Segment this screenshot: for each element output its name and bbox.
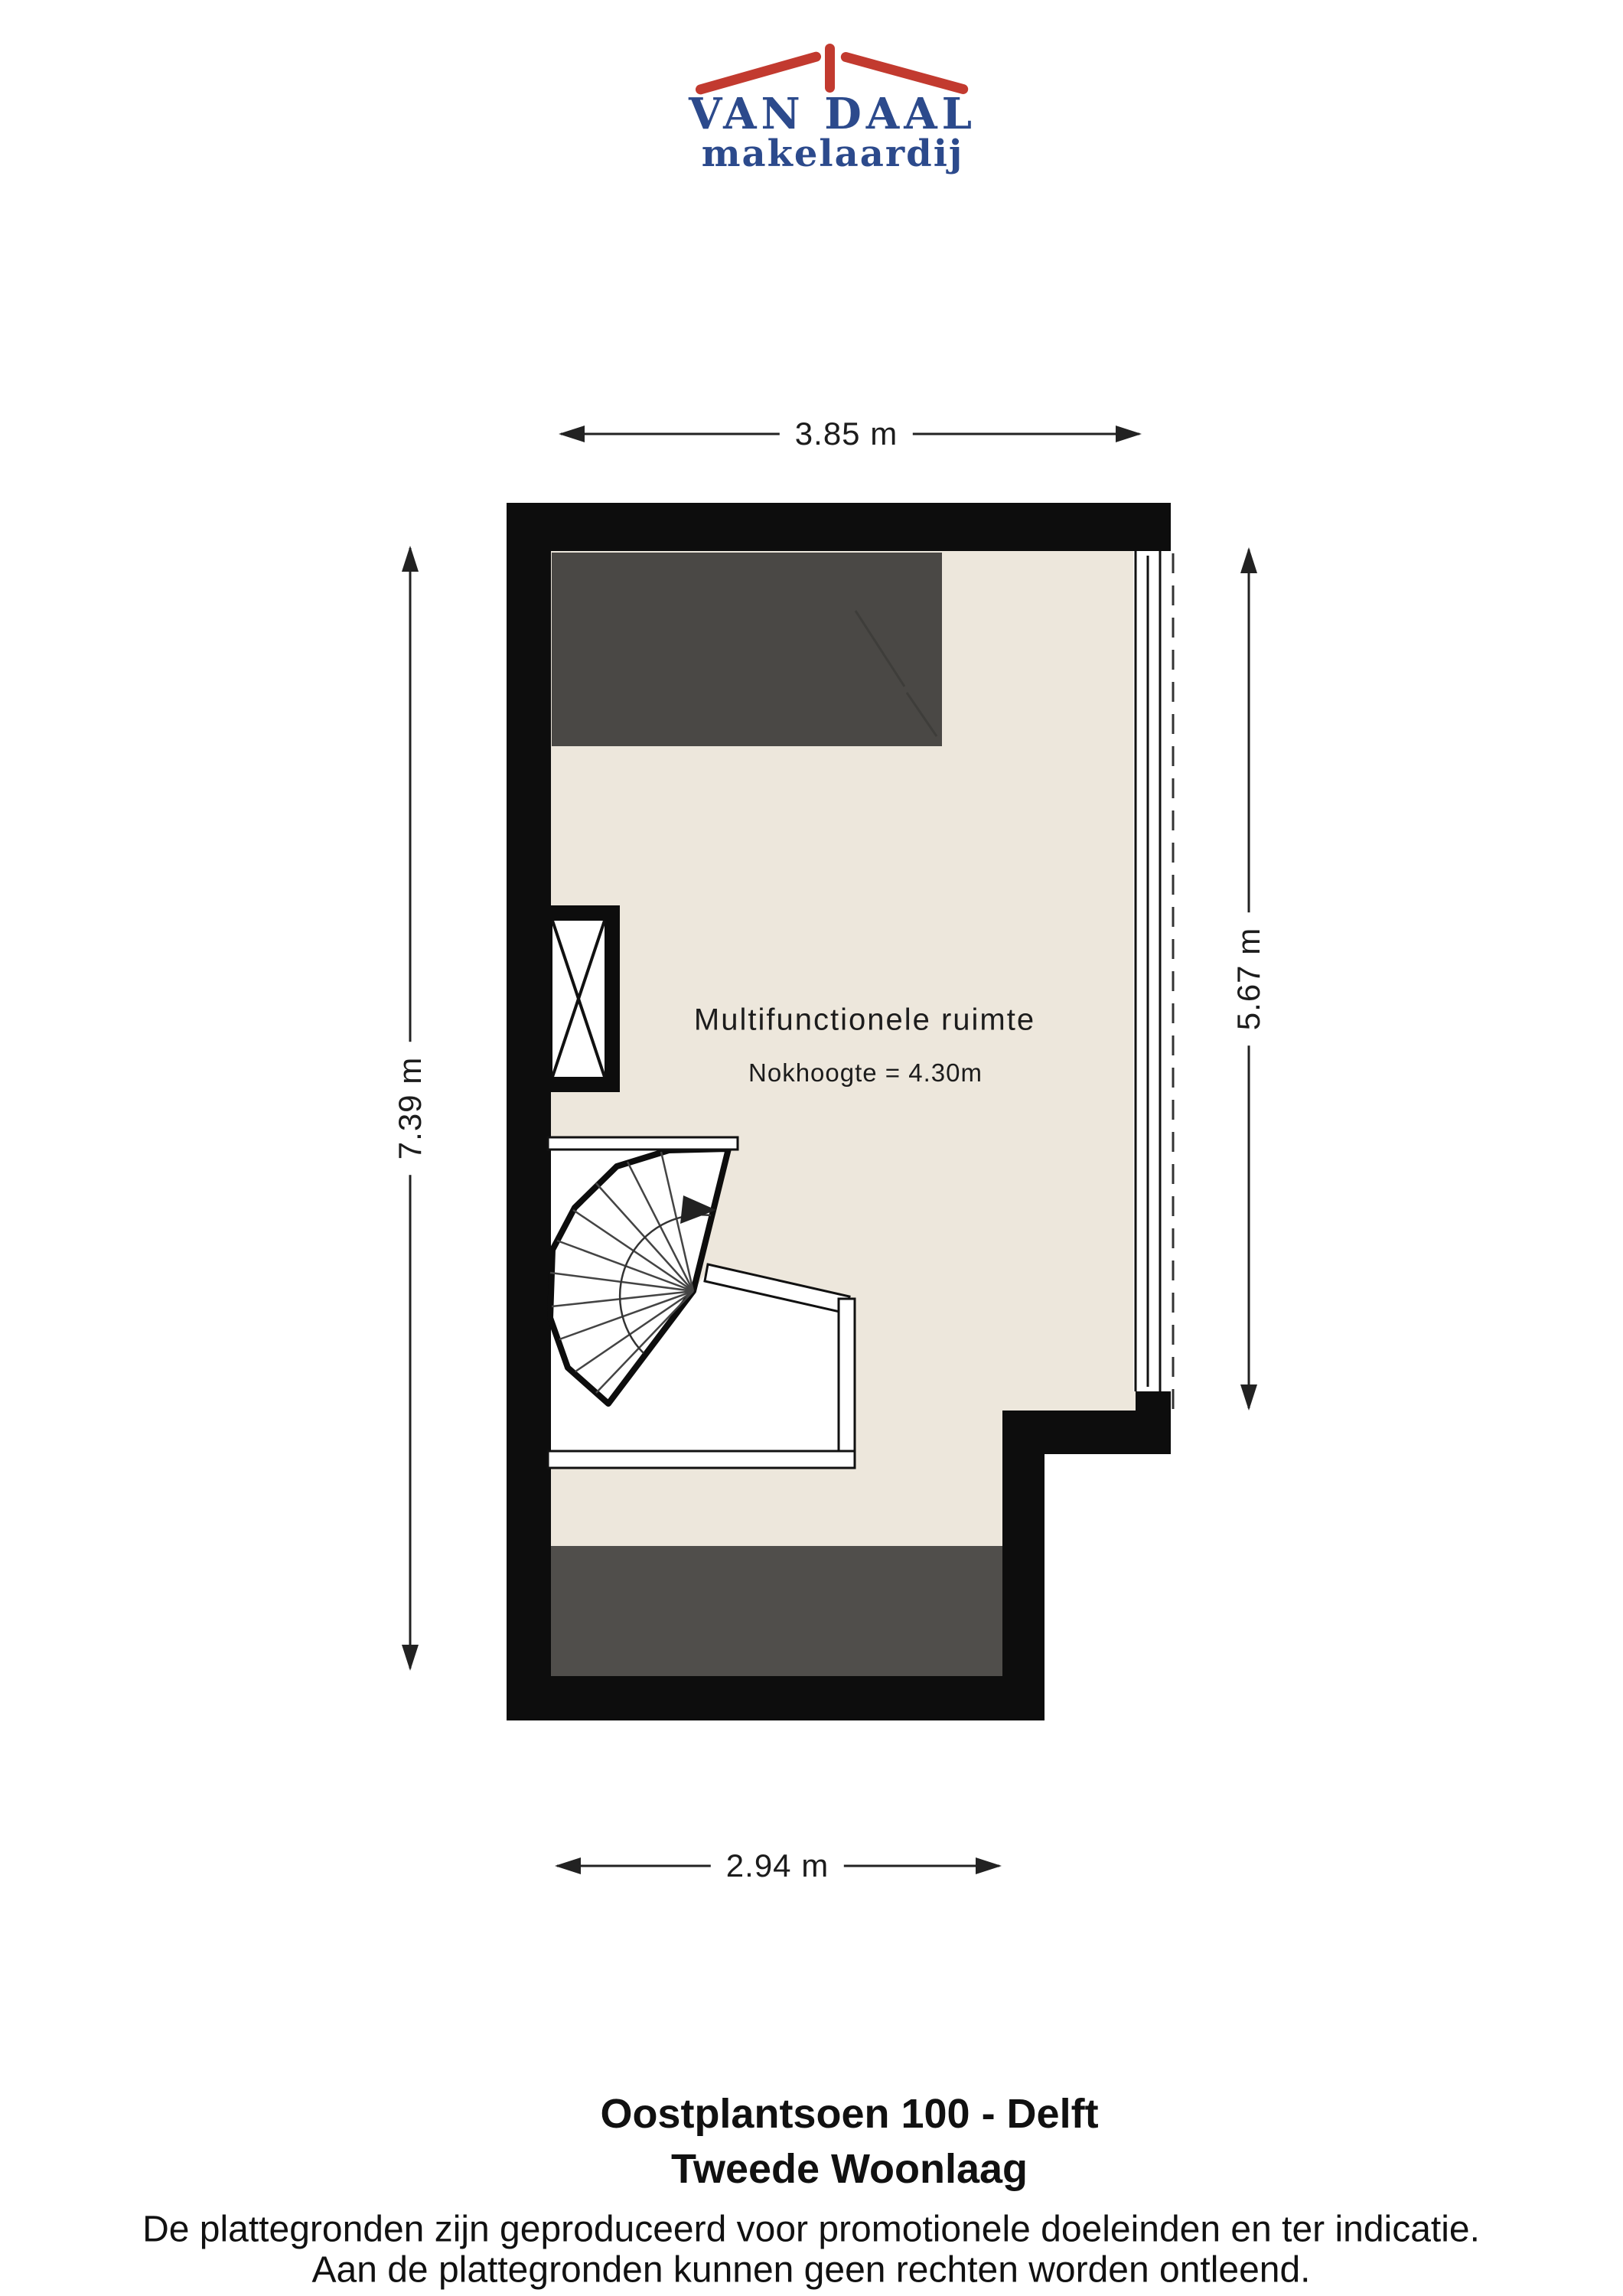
floorplan-page: VAN DAAL makelaardij [0, 0, 1623, 2296]
window [1133, 551, 1162, 1391]
disclaimer-line-2: Aan de plattegronden kunnen geen rechten… [311, 2249, 1310, 2291]
sloped-ceiling-bottom [551, 1546, 1002, 1676]
dimension-top-label: 3.85 m [780, 414, 913, 454]
shaft-icon [549, 905, 620, 1092]
address-title: Oostplantsoen 100 - Delft [600, 2090, 1098, 2138]
disclaimer-line-1: De plattegronden zijn geproduceerd voor … [142, 2209, 1480, 2251]
sloped-ceiling-top [552, 553, 942, 746]
room-note: Nokhoogte = 4.30m [748, 1058, 983, 1088]
dimension-bottom-label: 2.94 m [711, 1846, 844, 1886]
dimension-right-label: 5.67 m [1229, 912, 1269, 1045]
floor-plan [0, 0, 1623, 2296]
room-label: Multifunctionele ruimte [694, 1003, 1035, 1038]
floor-name-title: Tweede Woonlaag [671, 2145, 1028, 2193]
dimension-left-label: 7.39 m [390, 1042, 430, 1175]
